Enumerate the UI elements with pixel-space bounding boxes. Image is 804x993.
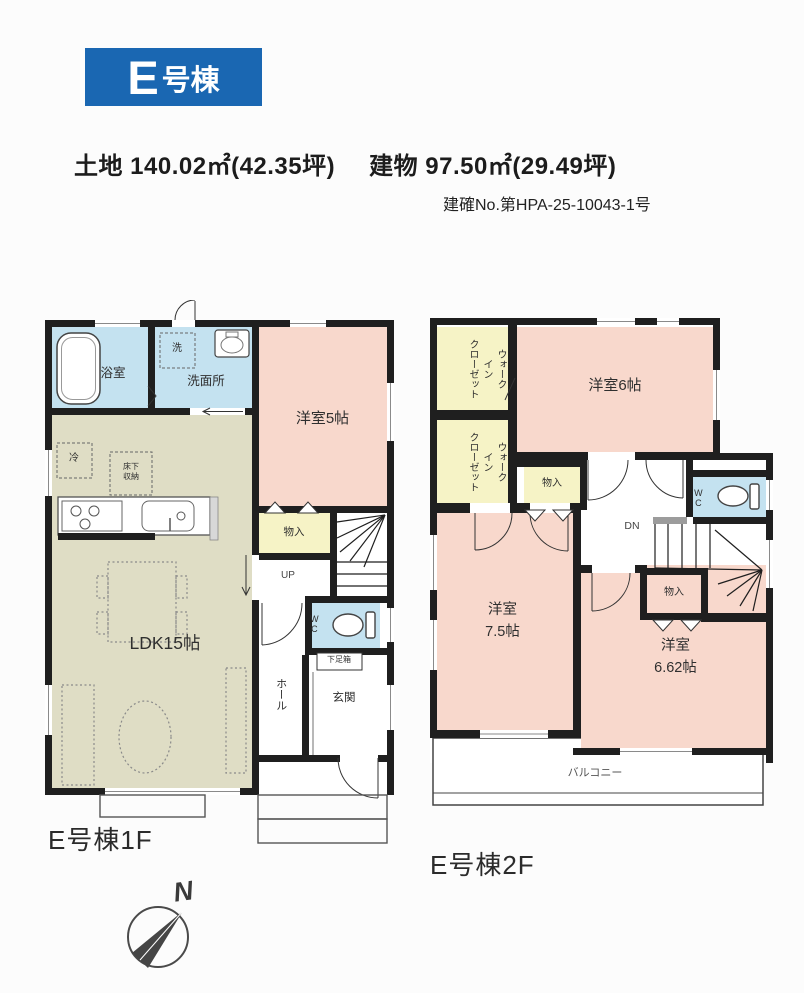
compass-north-label: N: [172, 875, 196, 907]
room-label-western662: 洋室 6.62帖: [613, 636, 738, 680]
room-label-western5: 洋室5帖: [260, 410, 385, 427]
closet-lower-label-2f: 物入: [649, 587, 699, 599]
compass-needle-split: [140, 911, 183, 960]
entrance-label: 玄関: [319, 692, 369, 705]
floor2-caption: E号棟2F: [430, 845, 535, 882]
room-label-western75: 洋室 7.5帖: [445, 600, 560, 644]
hall-label: ホール: [274, 664, 287, 724]
wc-label-2f: WC: [693, 482, 703, 514]
building-badge: E 号棟: [85, 48, 262, 106]
badge-letter: E: [127, 54, 158, 101]
wic-upper-label: ウォーク イン クローゼット: [435, 330, 507, 408]
shoe-box-label: 下足箱: [316, 655, 362, 664]
compass: N: [110, 875, 225, 990]
kitchen-counter-icon: [58, 497, 218, 540]
stair-handrail: [653, 517, 687, 524]
room-label-western6: 洋室6帖: [550, 377, 680, 394]
floor1-caption: E号棟1F: [48, 820, 153, 857]
wc-label-1f: WC: [309, 607, 319, 641]
wic-lower-label: ウォーク イン クローゼット: [435, 423, 507, 501]
stairs-up-label: UP: [272, 570, 304, 582]
closet-upper-label-2f: 物入: [527, 478, 577, 490]
room-label-ldk: LDK15帖: [90, 633, 240, 653]
floorplan-page: E 号棟 土地 140.02㎡(42.35坪) 建物 97.50㎡(29.49坪…: [0, 0, 804, 993]
closet-label-1f: 物入: [269, 526, 319, 538]
permit-number: 建確No.第HPA-25-10043-1号: [443, 191, 743, 215]
toilet-icon-1f: [333, 612, 375, 638]
room-label-bath: 浴室: [88, 366, 138, 380]
floor-storage-label: 床下 収納: [113, 462, 149, 481]
stairs-down-label: DN: [614, 520, 650, 532]
area-summary: 土地 140.02㎡(42.35坪) 建物 97.50㎡(29.49坪): [74, 146, 744, 181]
room-label-washroom: 洗面所: [168, 374, 244, 388]
vanity-sink-icon: [215, 330, 249, 357]
fridge-label: 冷: [64, 453, 84, 465]
land-area: 土地 140.02㎡(42.35坪): [74, 146, 335, 181]
washer-label: 洗: [167, 343, 187, 355]
badge-suffix: 号棟: [162, 59, 220, 96]
balcony-label: バルコニー: [535, 767, 655, 780]
building-area: 建物 97.50㎡(29.49坪): [369, 146, 616, 181]
